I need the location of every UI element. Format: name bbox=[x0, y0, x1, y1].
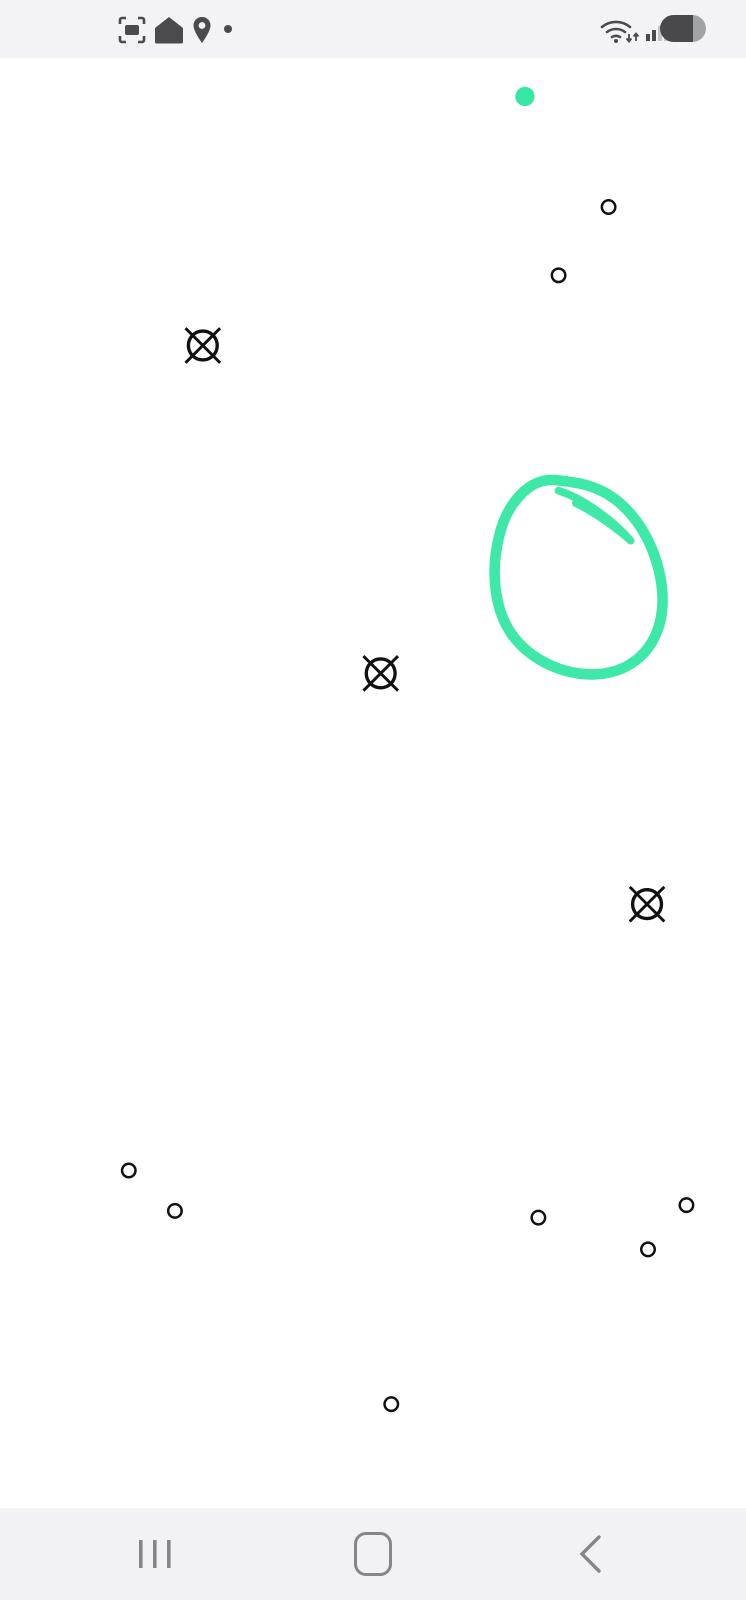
location-pin-icon bbox=[192, 16, 212, 44]
status-bar bbox=[0, 0, 746, 58]
map-rotated-plane bbox=[0, 58, 746, 1508]
home-icon bbox=[154, 16, 184, 44]
phone-screen bbox=[0, 0, 746, 1600]
home-icon bbox=[354, 1532, 392, 1576]
dot-icon bbox=[224, 25, 232, 33]
battery-indicator bbox=[660, 15, 706, 42]
wifi-arrows-icon bbox=[600, 18, 640, 44]
recents-button[interactable] bbox=[95, 1508, 215, 1600]
recents-icon bbox=[137, 1539, 173, 1569]
cadastral-map bbox=[0, 58, 746, 1508]
navigation-bar bbox=[0, 1508, 746, 1600]
screenshot-icon bbox=[118, 16, 146, 44]
home-button[interactable] bbox=[313, 1508, 433, 1600]
back-button[interactable] bbox=[530, 1508, 650, 1600]
back-icon bbox=[577, 1534, 603, 1574]
